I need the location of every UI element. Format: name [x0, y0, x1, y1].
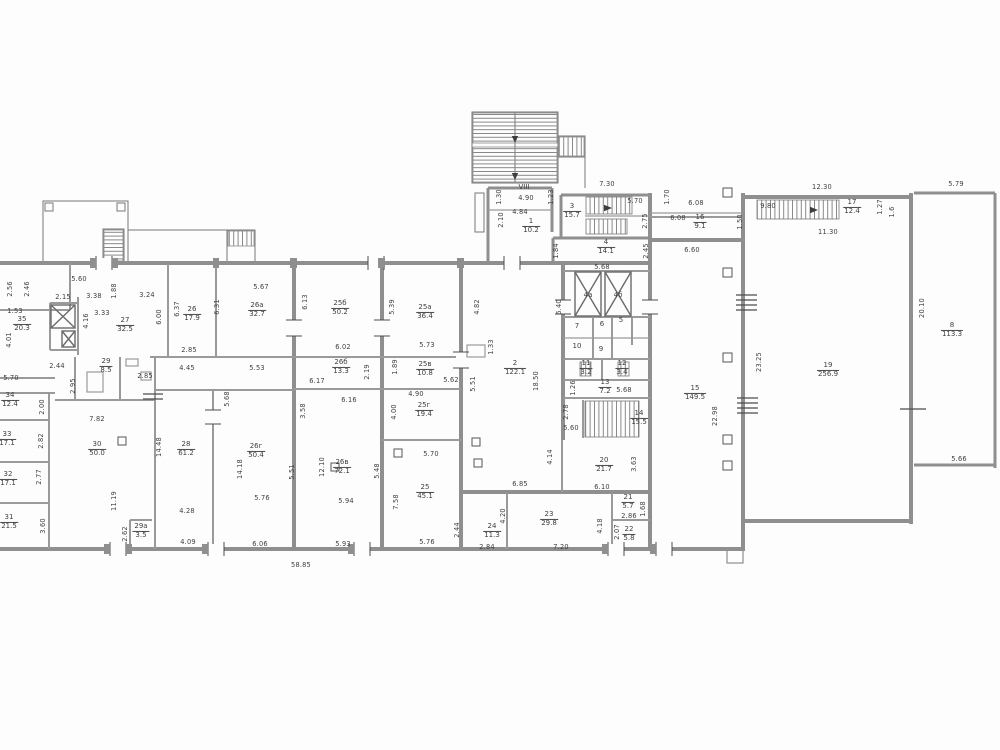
dimension-label: 12.30: [812, 183, 832, 191]
text-label: 4б: [614, 291, 623, 299]
dimension-label: 1.84: [552, 243, 560, 258]
dimension-label: 4.01: [5, 332, 13, 347]
dimension-label: 6.40: [555, 299, 563, 314]
dimension-label: 2.95: [69, 378, 77, 393]
dimension-label: 11.30: [818, 228, 838, 236]
dimension-label: 1.30: [495, 189, 503, 204]
dimension-label: 7.82: [89, 415, 104, 423]
floorplan-canvas: 110.22122.1315.7414.18113.3113.2123.4137…: [0, 0, 1000, 750]
dimension-label: 5.60: [563, 424, 578, 432]
dimension-label: 5.39: [388, 299, 396, 314]
dimension-label: 6.17: [309, 377, 324, 385]
dimension-label: 2.00: [38, 399, 46, 414]
dimension-label: 2.85: [137, 372, 152, 380]
dimension-label: 5.68: [223, 391, 231, 406]
dimension-label: 5.62: [443, 376, 458, 384]
dimension-label: 1.33: [487, 339, 495, 354]
dimension-label: 4.84: [512, 208, 527, 216]
room-label-22: 225.8: [622, 526, 635, 542]
dimension-label: 7.30: [599, 180, 614, 188]
dimension-label: 4.14: [546, 449, 554, 464]
dimension-label: 2.82: [37, 433, 45, 448]
dimension-label: 2.84: [479, 543, 494, 551]
text-label: 4а: [584, 291, 593, 299]
dimension-label: 1.68: [639, 501, 647, 516]
dimension-label: 4.45: [179, 364, 194, 372]
dimension-label: 5.68: [616, 386, 631, 394]
room-label-29а: 29а3.5: [132, 523, 149, 539]
dimension-label: 5.76: [254, 494, 269, 502]
dimension-label: 2.56: [6, 281, 14, 296]
text-label: 10: [573, 342, 582, 350]
dimension-label: 6.02: [335, 343, 350, 351]
dimension-label: 22.98: [711, 406, 719, 426]
room-label-26а: 26а32.7: [248, 302, 266, 318]
room-label-23: 2329.8: [540, 511, 558, 527]
room-label-19: 19256.9: [817, 362, 839, 378]
dimension-label: 5.67: [253, 283, 268, 291]
dimension-label: 2.86: [621, 512, 636, 520]
room-label-1: 110.2: [522, 218, 540, 234]
dimension-label: 6.00: [155, 309, 163, 324]
dimension-label: 3.60: [39, 518, 47, 533]
dimension-label: 14.48: [155, 437, 163, 457]
room-label-25: 2545.1: [416, 484, 434, 500]
dimension-label: 5.93: [335, 540, 350, 548]
dimension-label: 5.51: [469, 376, 477, 391]
room-label-13: 137.2: [598, 379, 611, 395]
dimension-label: 12.10: [318, 457, 326, 477]
room-label-25а: 25а36.4: [416, 304, 434, 320]
dimension-label: 2.15: [55, 293, 70, 301]
dimension-label: 2.78: [562, 404, 570, 419]
room-label-35: 3520.3: [13, 316, 31, 332]
dimension-label: 5.79: [948, 180, 963, 188]
room-label-17: 1712.4: [843, 199, 861, 215]
dimension-label: 5.94: [338, 497, 353, 505]
text-label: VIII: [519, 183, 530, 191]
dimension-label: 4.82: [473, 299, 481, 314]
room-label-14: 1415.5: [630, 410, 648, 426]
dimension-label: 2.77: [35, 469, 43, 484]
dimension-label: 4.09: [180, 538, 195, 546]
room-label-16: 169.1: [693, 214, 706, 230]
room-label-8: 8113.3: [941, 322, 963, 338]
room-label-33: 3317.1: [0, 431, 16, 447]
room-label-25б: 25б50.2: [331, 300, 349, 316]
dimension-label: 2.19: [363, 364, 371, 379]
dimension-label: 1.50: [736, 214, 744, 229]
dimension-label: 1.88: [110, 283, 118, 298]
room-label-26г: 26г50.4: [247, 443, 265, 459]
dimension-label: 5.68: [594, 263, 609, 271]
dimension-label: 1.27: [876, 199, 884, 214]
room-label-12: 123.4: [615, 360, 628, 376]
dimension-label: 4.90: [518, 194, 533, 202]
dimension-label: 6.85: [512, 480, 527, 488]
text-label: 5: [619, 316, 623, 324]
dimension-label: 1.6: [888, 206, 896, 217]
room-label-26: 2617.9: [183, 306, 201, 322]
dimension-label: 5.70: [3, 374, 18, 382]
dimension-label: 7.20: [553, 543, 568, 551]
dimension-label: 11.19: [110, 491, 118, 511]
dimension-label: 2.44: [49, 362, 64, 370]
dimension-label: 6.60: [684, 246, 699, 254]
dimension-label: 5.66: [951, 455, 966, 463]
room-label-4: 414.1: [597, 239, 615, 255]
dimension-label: 1.70: [663, 189, 671, 204]
dimension-label: 5.70: [627, 197, 642, 205]
dimension-label: 58.85: [291, 561, 311, 569]
room-label-3: 315.7: [563, 203, 581, 219]
dimension-label: 1.89: [391, 359, 399, 374]
dimension-label: 2.07: [613, 524, 621, 539]
room-label-15: 15149.5: [684, 385, 706, 401]
dimension-label: 2.75: [641, 213, 649, 228]
dimension-label: 4.90: [408, 390, 423, 398]
room-label-34: 3412.4: [1, 392, 19, 408]
dimension-label: 2.46: [23, 281, 31, 296]
dimension-label: 3.58: [299, 403, 307, 418]
dimension-label: 3.33: [94, 309, 109, 317]
dimension-label: 5.53: [249, 364, 264, 372]
dimension-label: 4.18: [596, 518, 604, 533]
room-label-29: 298.5: [99, 358, 112, 374]
dimension-label: 14.18: [236, 459, 244, 479]
room-label-31: 3121.5: [0, 514, 18, 530]
dimension-label: 6.16: [341, 396, 356, 404]
dimension-label: 1.23: [547, 189, 555, 204]
dimension-label: 6.31: [213, 299, 221, 314]
dimension-label: 3.63: [630, 456, 638, 471]
dimension-label: 20.10: [918, 298, 926, 318]
text-label: 9: [599, 345, 603, 353]
dimension-label: 5.73: [419, 341, 434, 349]
dimension-label: 5.60: [71, 275, 86, 283]
dimension-label: 6.06: [252, 540, 267, 548]
dimension-label: 4.00: [390, 404, 398, 419]
dimension-label: 1.53: [7, 307, 22, 315]
dimension-label: 6.10: [594, 483, 609, 491]
dimension-label: 5.48: [373, 463, 381, 478]
dimension-label: 6.13: [301, 294, 309, 309]
dimension-label: 5.76: [419, 538, 434, 546]
dimension-label: 2.62: [121, 526, 129, 541]
dimension-label: 6.08: [670, 214, 685, 222]
room-label-30: 3050.0: [88, 441, 106, 457]
room-label-11: 113.2: [579, 360, 592, 376]
room-label-2: 2122.1: [504, 360, 526, 376]
room-label-28: 2861.2: [177, 441, 195, 457]
room-label-20: 2021.7: [595, 457, 613, 473]
room-label-27: 2732.5: [116, 317, 134, 333]
text-label: 6: [600, 320, 604, 328]
room-label-26б: 26б13.3: [332, 359, 350, 375]
room-label-25г: 25г19.4: [415, 402, 433, 418]
dimension-label: 3.24: [139, 291, 154, 299]
dimension-label: 2.44: [453, 522, 461, 537]
dimension-label: 2.45: [642, 243, 650, 258]
room-label-25в: 25в10.8: [416, 361, 434, 377]
dimension-label: 4.20: [499, 508, 507, 523]
room-label-26в: 26в72.1: [333, 459, 351, 475]
dimension-label: 9.80: [760, 202, 775, 210]
room-label-21: 215.7: [621, 494, 634, 510]
room-label-32: 3217.1: [0, 471, 17, 487]
dimension-label: 2.85: [181, 346, 196, 354]
dimension-label: 23.25: [755, 352, 763, 372]
dimension-label: 4.16: [82, 313, 90, 328]
dimension-label: 6.08: [688, 199, 703, 207]
dimension-label: 7.58: [392, 494, 400, 509]
dimension-label: 5.51: [288, 464, 296, 479]
room-label-24: 2411.3: [483, 523, 501, 539]
dimension-label: 3.38: [86, 292, 101, 300]
text-label: 7: [575, 322, 579, 330]
dimension-label: 2.10: [497, 212, 505, 227]
dimension-label: 5.70: [423, 450, 438, 458]
dimension-label: 4.28: [179, 507, 194, 515]
dimension-label: 6.37: [173, 301, 181, 316]
dimension-label: 1.26: [569, 380, 577, 395]
dimension-label: 18.50: [532, 371, 540, 391]
annotation-layer: 110.22122.1315.7414.18113.3113.2123.4137…: [0, 0, 1000, 750]
